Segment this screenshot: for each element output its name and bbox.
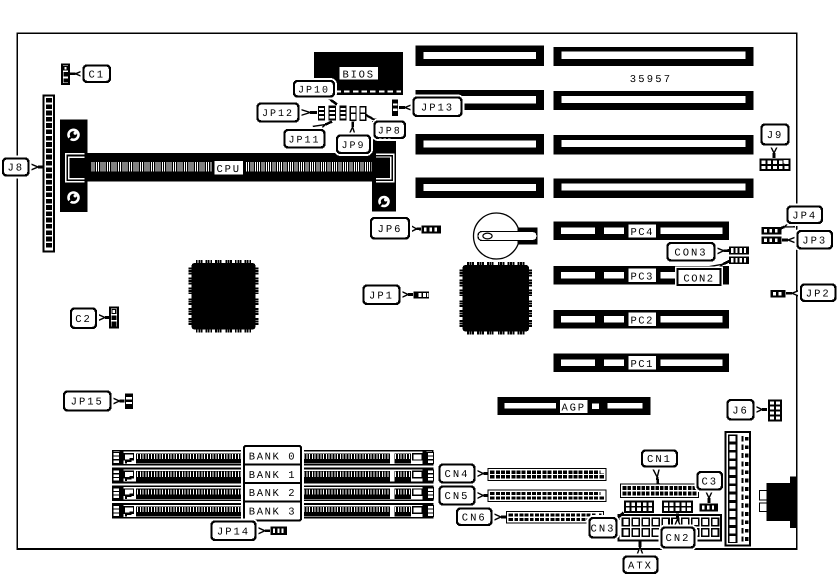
svg-text:CN3: CN3 [591, 523, 616, 535]
svg-text:BANK 3: BANK 3 [249, 507, 296, 519]
svg-text:JP14: JP14 [217, 526, 250, 538]
svg-text:C3: C3 [701, 476, 718, 488]
svg-text:JP11: JP11 [288, 135, 320, 146]
svg-text:C2: C2 [75, 314, 92, 326]
svg-text:JP4: JP4 [792, 210, 817, 222]
svg-text:J9: J9 [767, 130, 784, 142]
svg-text:CN4: CN4 [445, 469, 470, 481]
svg-text:PC2: PC2 [630, 315, 653, 327]
svg-text:JP3: JP3 [802, 235, 827, 247]
svg-text:PC1: PC1 [630, 359, 653, 371]
svg-text:J6: J6 [732, 405, 749, 417]
svg-text:PC3: PC3 [630, 271, 653, 283]
svg-text:JP10: JP10 [298, 85, 330, 96]
svg-text:JP13: JP13 [421, 102, 454, 114]
svg-text:CN1: CN1 [647, 454, 672, 466]
svg-text:BANK 2: BANK 2 [249, 488, 296, 500]
svg-text:JP8: JP8 [378, 126, 402, 137]
svg-text:PC4: PC4 [630, 227, 653, 239]
svg-text:CPU: CPU [217, 164, 241, 176]
svg-text:35957: 35957 [630, 74, 673, 86]
svg-text:JP6: JP6 [378, 224, 403, 236]
svg-text:JP12: JP12 [262, 109, 294, 120]
svg-text:CON2: CON2 [683, 274, 714, 286]
svg-text:J8: J8 [7, 163, 24, 175]
svg-text:ATX: ATX [628, 560, 653, 572]
svg-text:CN2: CN2 [666, 533, 691, 545]
svg-text:BANK 1: BANK 1 [249, 470, 296, 482]
svg-text:JP15: JP15 [71, 397, 104, 409]
svg-text:CN6: CN6 [462, 512, 487, 524]
svg-text:CN5: CN5 [445, 491, 470, 503]
svg-text:JP2: JP2 [806, 288, 831, 300]
svg-text:C1: C1 [88, 69, 105, 81]
svg-text:JP1: JP1 [369, 290, 394, 302]
svg-text:CON3: CON3 [674, 247, 707, 259]
svg-text:BANK 0: BANK 0 [249, 452, 296, 464]
svg-text:JP9: JP9 [341, 141, 365, 152]
svg-text:BIOS: BIOS [342, 69, 374, 81]
svg-text:AGP: AGP [562, 403, 586, 415]
